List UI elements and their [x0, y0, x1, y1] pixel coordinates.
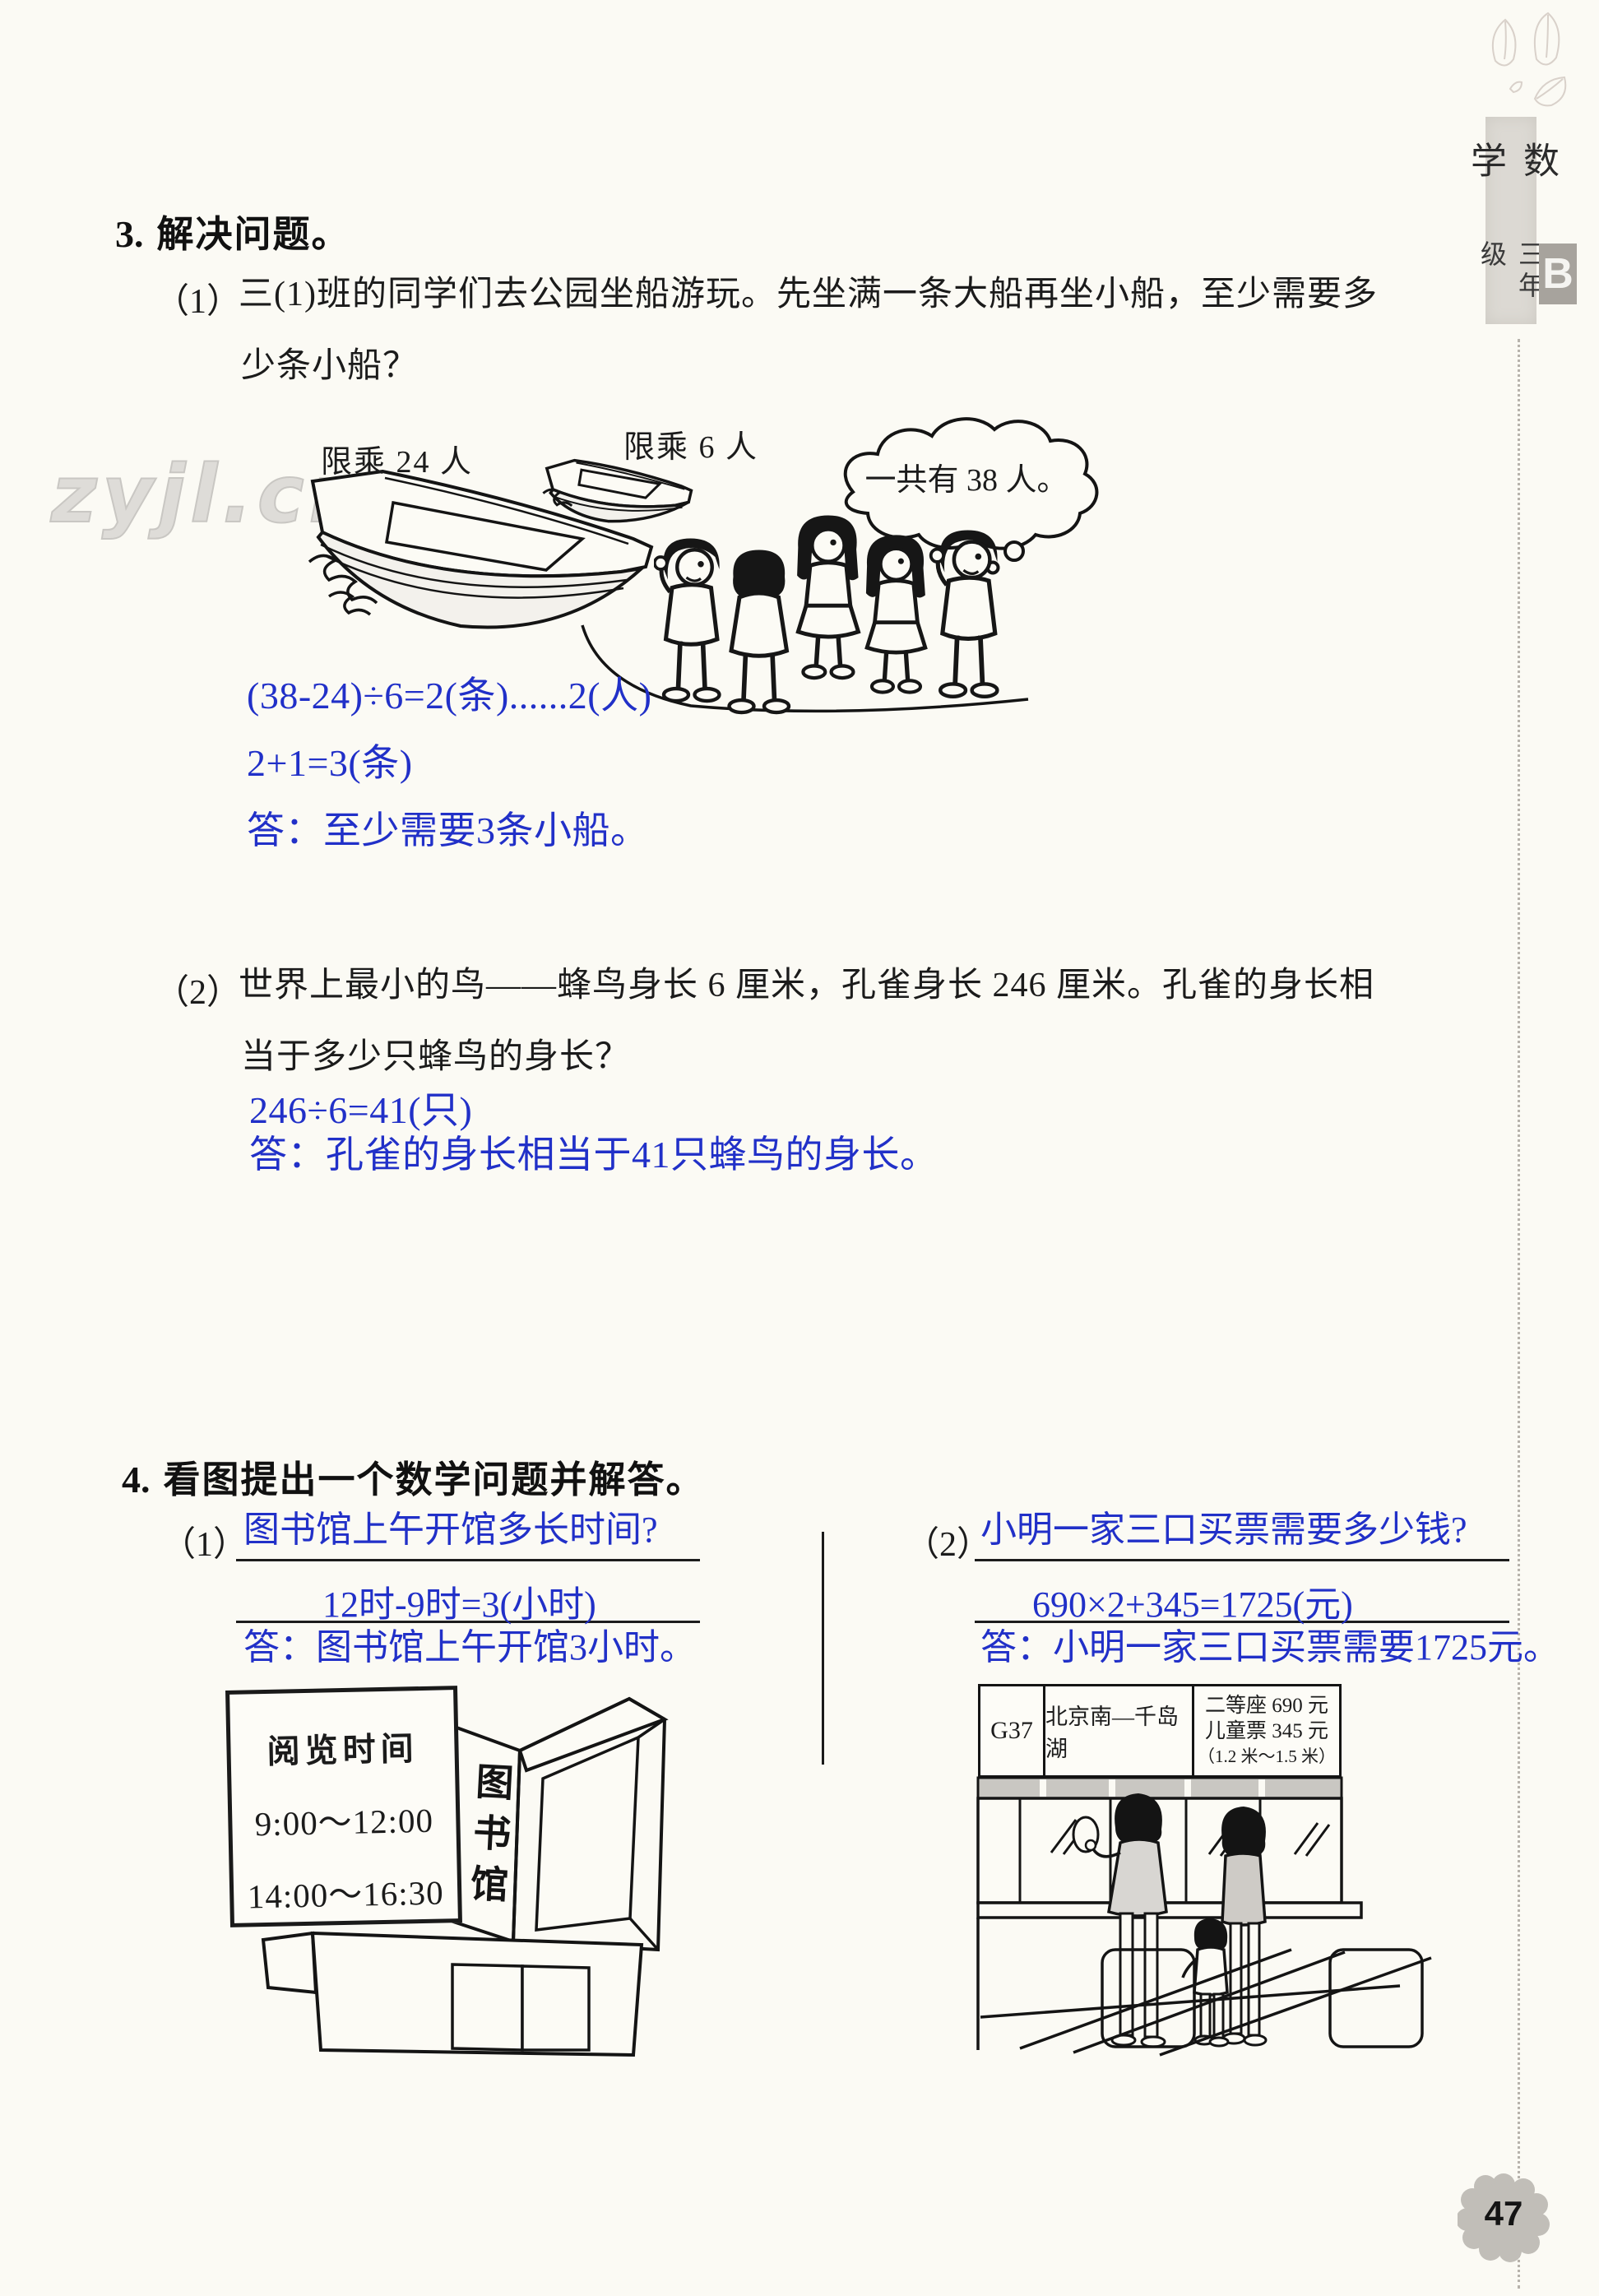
sidebar-grade: 三年级: [1473, 240, 1549, 325]
q3p1-answer-line2: 2+1=3(条): [247, 740, 413, 786]
column-divider: [822, 1532, 824, 1765]
price-child: 儿童票 345 元: [1205, 1719, 1328, 1744]
question3-title: 解决问题。: [157, 213, 350, 255]
question3-header: 3.解决问题。: [115, 204, 350, 257]
price-child-height-range: （1.2 米～1.5 米）: [1198, 1744, 1336, 1770]
level-badge: B: [1539, 244, 1577, 304]
sidebar-banner: 数学 三年级: [1485, 117, 1536, 324]
q4p1-equation: 12时-9时=3(小时): [322, 1583, 596, 1627]
q4p1-answer: 答：图书馆上午开馆3小时。: [243, 1626, 696, 1670]
q3p1-text-line2: 少条小船？: [241, 345, 418, 387]
price-second-class: 二等座 690 元: [1205, 1693, 1328, 1719]
workbook-page: 数学 三年级 B 3.解决问题。 （1） 三(1)班的同学们去公园坐船游玩。先坐…: [0, 0, 1599, 2296]
library-sign-morning-hours: 9:00～12:00: [232, 1792, 457, 1846]
q4p1-label: （1）: [161, 1516, 248, 1566]
library-name-sign: 图书馆: [458, 1760, 521, 1916]
q4p2-label: （2）: [905, 1516, 991, 1566]
question3-number: 3.: [115, 213, 144, 255]
q4p2-answer: 答：小明一家三口买票需要1725元。: [980, 1626, 1560, 1670]
library-sign-afternoon-hours: 14:00～16:30: [234, 1864, 458, 1918]
q4p2-equation: 690×2+345=1725(元): [1032, 1583, 1353, 1627]
q3p2-label: （2）: [155, 964, 241, 1014]
route-cell: 北京南—千岛湖: [1045, 1686, 1194, 1775]
q3p2-text-line1: 世界上最小的鸟——蜂鸟身长 6 厘米，孔雀身长 246 厘米。孔雀的身长相: [239, 964, 1374, 1007]
q4p1-question: 图书馆上午开馆多长时间?: [243, 1508, 658, 1552]
q3p2-text-line2: 当于多少只蜂鸟的身长？: [241, 1036, 630, 1078]
small-boat-capacity-label: 限乘 6 人: [623, 421, 758, 466]
question4-title: 看图提出一个数学问题并解答。: [164, 1459, 705, 1501]
q3p1-label: （1）: [155, 273, 241, 323]
q4p2-question-underline: [975, 1559, 1509, 1561]
q3p1-text-line1: 三(1)班的同学们去公园坐船游玩。先坐满一条大船再坐小船，至少需要多: [239, 273, 1378, 316]
q4p2-question: 小明一家三口买票需要多少钱?: [980, 1508, 1467, 1552]
ticket-info-table: G37 北京南—千岛湖 二等座 690 元 儿童票 345 元 （1.2 米～1…: [978, 1684, 1342, 1778]
page-number: 47: [1479, 2194, 1528, 2233]
leaf-decoration: [1472, 10, 1596, 117]
q3p2-answer-line1: 246÷6=41(只): [249, 1088, 472, 1134]
sidebar-subject: 数学: [1458, 141, 1564, 219]
library-sign-title: 阅览时间: [230, 1721, 455, 1774]
q3p2-answer-line2: 答：孔雀的身长相当于41只蜂鸟的身长。: [249, 1132, 939, 1178]
question4-number: 4.: [122, 1459, 151, 1501]
q3p1-answer-line3: 答：至少需要3条小船。: [247, 808, 649, 854]
question4-header: 4.看图提出一个数学问题并解答。: [122, 1449, 705, 1503]
price-cell: 二等座 690 元 儿童票 345 元 （1.2 米～1.5 米）: [1194, 1686, 1339, 1775]
library-sign: 阅览时间 9:00～12:00 14:00～16:30: [225, 1686, 462, 1927]
children-illustration: [654, 512, 1016, 721]
q3p1-answer-line1: (38-24)÷6=2(条)......2(人): [247, 673, 651, 719]
big-boat-capacity-label: 限乘 24 人: [321, 436, 473, 481]
train-number-cell: G37: [980, 1686, 1045, 1775]
margin-dotted-line: [1518, 339, 1520, 2289]
q4p1-question-underline: [236, 1559, 700, 1561]
bubble-text: 一共有 38 人。: [847, 454, 1086, 499]
